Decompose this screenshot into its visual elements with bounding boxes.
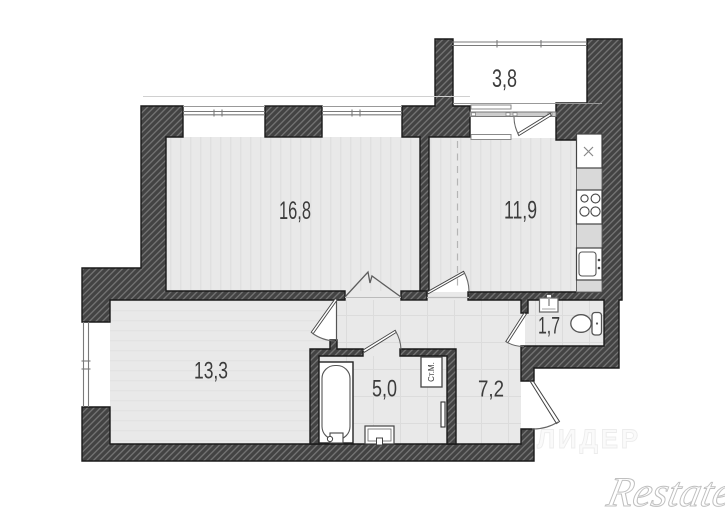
svg-text:11,9: 11,9	[504, 197, 537, 225]
svg-text:16,8: 16,8	[279, 197, 311, 225]
svg-text:Ст.М.: Ст.М.	[427, 362, 436, 382]
svg-text:ЛИДЕР: ЛИДЕР	[537, 424, 641, 454]
svg-text:13,3: 13,3	[194, 358, 228, 385]
svg-text:7,2: 7,2	[478, 376, 504, 402]
svg-text:3,8: 3,8	[492, 65, 517, 93]
svg-text:1,7: 1,7	[538, 313, 560, 340]
svg-text:5,0: 5,0	[372, 376, 397, 403]
